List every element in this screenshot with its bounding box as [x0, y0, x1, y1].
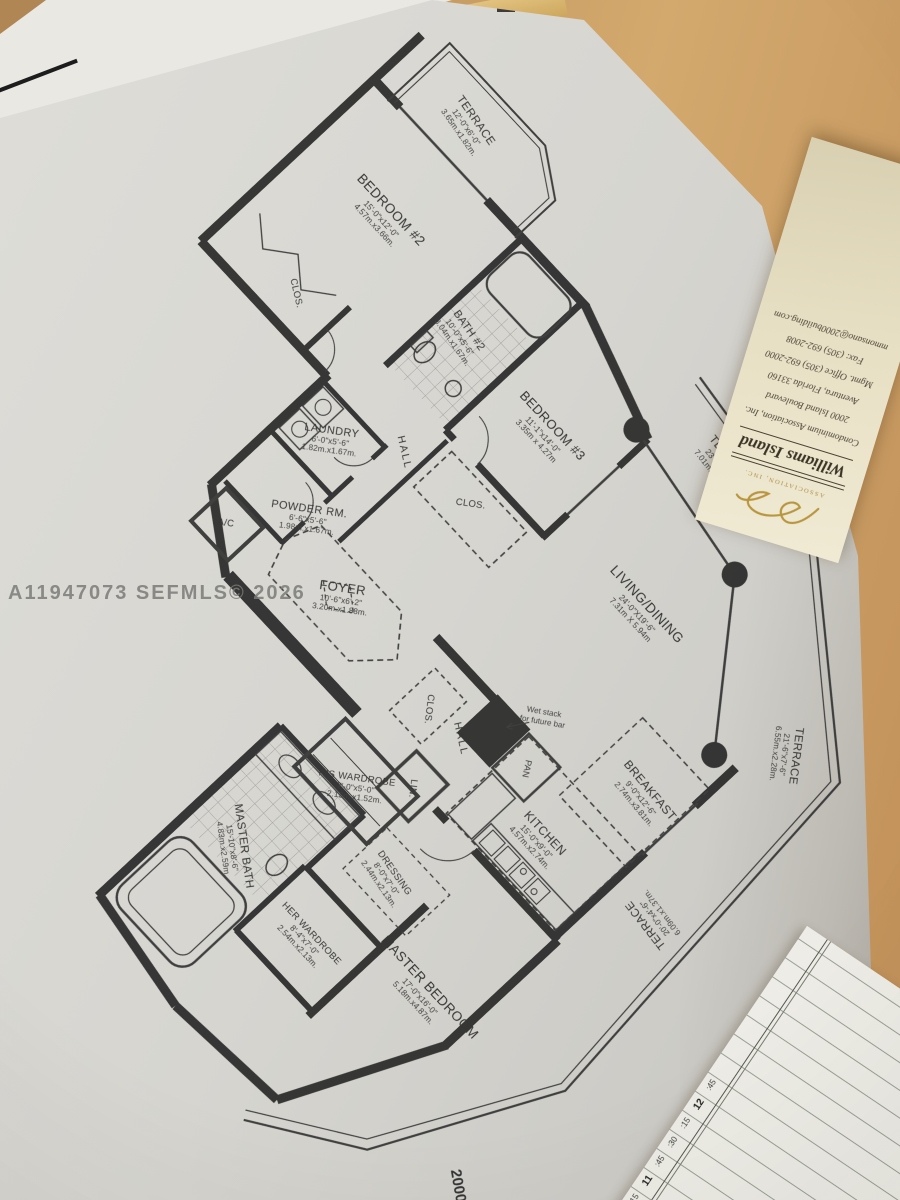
- closet-label: CLOS.: [455, 497, 486, 512]
- room-terrace-south: TERRACE 20'-0"x4'-6" 6.09m.x1.37m.: [623, 887, 683, 952]
- ac-label: A/C: [217, 517, 235, 530]
- master-bath-tile-floor: [184, 731, 358, 904]
- room-her-wardrobe: HER WARDROBE 8'-4"x7'-0" 2.54m.x2.13m.: [266, 900, 343, 980]
- linen-label: LIN.: [406, 779, 419, 799]
- room-bedroom-3: BEDROOM #3 11'-1"x14'-0" 3.35m x 4.27m: [502, 388, 588, 477]
- label-ac-closet: A/C: [217, 517, 235, 530]
- timesheet-cell: :45: [701, 1073, 723, 1098]
- label-hall-upper: HALL: [395, 435, 414, 471]
- mls-watermark: A11947073 SEFMLS© 2026: [8, 582, 306, 605]
- room-kitchen: KITCHEN 15'-0"x9'-0" 4.57m.x2.74m.: [507, 808, 569, 871]
- column-icon: [696, 737, 733, 774]
- burner-icon: [530, 887, 538, 895]
- column-icon: [716, 556, 753, 593]
- wet-stack-column: [457, 694, 531, 767]
- room-breakfast: BREAKFAST 9'-0"x12'-6" 2.74m.x3.81m.: [606, 757, 679, 835]
- label-pantry: PAN: [520, 759, 533, 779]
- pantry-label: PAN: [520, 759, 533, 779]
- label-closet-bedroom2: CLOS.: [287, 277, 304, 309]
- footer-text: 2000: [447, 1168, 470, 1200]
- room-living-dining: LIVING/DINING 24'-0"X19'-6" 7.31m X 5.94…: [593, 563, 687, 660]
- washer-door: [312, 396, 335, 419]
- closet-label: CLOS.: [422, 694, 437, 725]
- card-address-block: Condominium Association, Inc. 2000 Islan…: [742, 302, 891, 451]
- burner-icon: [519, 867, 527, 875]
- listing-photo: :30 :15 11 :45 :30 :15 12 :45: [0, 0, 900, 1200]
- label-closet-lower: CLOS.: [422, 694, 437, 725]
- room-dressing: DRESSING 8'-0"x7'-0" 2.44m.x2.13m.: [359, 847, 415, 909]
- label-closet-bedroom3: CLOS.: [455, 497, 486, 512]
- hall-label: HALL: [395, 435, 414, 471]
- backdrop-sheet-mark: [0, 59, 78, 94]
- closet-label: CLOS.: [287, 277, 304, 309]
- label-plan-footer: 2000: [447, 1168, 470, 1200]
- room-bedroom-2: BEDROOM #2 15'-0"x12'-0" 4.57m.x3.66m.: [340, 171, 429, 263]
- room-foyer: FOYER 10'-6"x6'-2" 3.20m.x1.88m.: [312, 576, 372, 617]
- room-terrace-se: TERRACE 21'-6"x7'-6" 6.55m.x2.28m.: [767, 724, 805, 785]
- room-terrace-top: TERRACE 12'-0"x6'-0" 3.65m.x1.82m.: [439, 94, 498, 159]
- room-powder: POWDER RM. 6'-6"x5'-6" 1.98m.x1.67m.: [268, 498, 348, 538]
- label-linen: LIN.: [406, 779, 419, 799]
